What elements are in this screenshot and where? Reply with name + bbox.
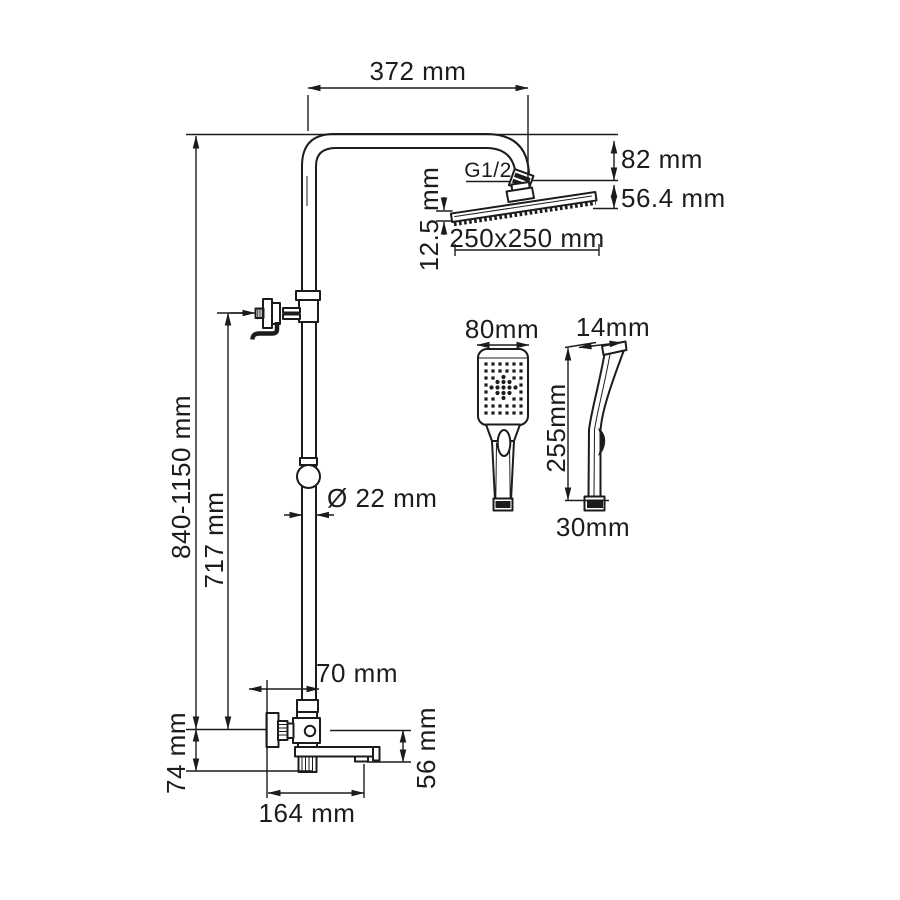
label-column-height: 840-1150 mm xyxy=(166,395,196,559)
label-thread: G1/2 xyxy=(464,159,512,182)
shower-system-diagram: 372 mm 82 mm 56.4 mm 12.5 mm 250x250 mm … xyxy=(0,0,900,900)
valve-port xyxy=(305,726,315,736)
label-head-assembly-height: 56.4 mm xyxy=(621,183,726,213)
label-arm-reach: 372 mm xyxy=(370,56,467,86)
mode-button xyxy=(498,430,511,456)
mixer-handle xyxy=(278,721,294,740)
label-mixer-drop: 74 mm xyxy=(161,712,191,794)
label-handshower-depth: 14mm xyxy=(576,312,650,342)
label-handshower-length: 255mm xyxy=(541,383,571,472)
label-head-offset: 82 mm xyxy=(621,144,703,174)
label-head-size: 250x250 mm xyxy=(449,223,604,253)
handshower-side-view xyxy=(585,342,627,511)
label-wall-to-pipe: 70 mm xyxy=(316,658,398,688)
technical-drawing-canvas: 372 mm 82 mm 56.4 mm 12.5 mm 250x250 mm … xyxy=(0,0,900,900)
pipe-adapter xyxy=(297,700,318,712)
label-handshower-width: 80mm xyxy=(465,314,539,344)
spout-aerator xyxy=(355,757,368,762)
diverter-knob xyxy=(297,458,320,488)
label-pipe-diameter: Ø 22 mm xyxy=(327,483,437,513)
label-spout-reach: 164 mm xyxy=(259,798,356,828)
ball-joint xyxy=(507,188,535,203)
label-spout-drop: 56 mm xyxy=(411,707,441,789)
hose-union xyxy=(299,757,317,773)
dimension-labels: 372 mm 82 mm 56.4 mm 12.5 mm 250x250 mm … xyxy=(161,56,726,828)
wall-escutcheon xyxy=(267,713,279,747)
label-bracket-height: 717 mm xyxy=(199,492,229,589)
handshower-front-view xyxy=(478,349,528,511)
label-head-thickness: 12.5 mm xyxy=(414,167,444,272)
label-handshower-bottom: 30mm xyxy=(556,512,630,542)
bath-mixer xyxy=(267,700,380,772)
